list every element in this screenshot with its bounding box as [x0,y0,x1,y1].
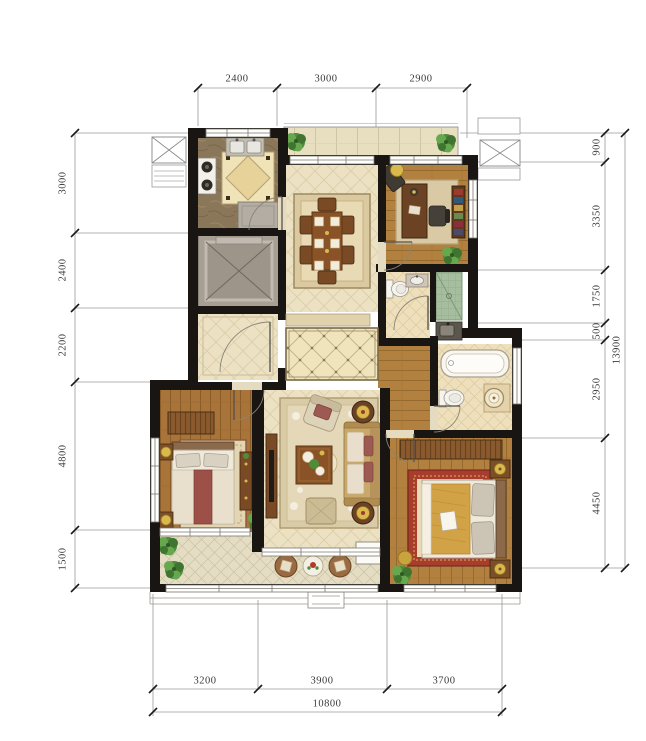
dim-label: 2400 [58,259,69,282]
bathtub [441,350,509,377]
window-living-balcony [262,548,380,556]
side-table [352,401,374,423]
dim-label: 3000 [58,172,69,195]
elevator [198,234,280,308]
window-master-south [404,585,496,592]
toilet [439,390,464,407]
sofa [344,422,380,506]
dim-label: 4800 [58,445,69,468]
window-sill-south [150,592,520,608]
window-kitchen-north [206,129,270,137]
bed [172,442,234,524]
dim-label: 2200 [58,334,69,357]
master-bathroom [437,344,512,430]
study-door-threshold [378,242,386,272]
window-balcony-south [166,585,378,592]
floor-plan-page: 2400 3000 2900 3000 2400 2200 4800 1500 … [0,0,646,741]
side-table [352,502,374,524]
wardrobe [168,412,214,434]
master-bedroom [390,438,512,585]
wicker-chair [329,555,351,577]
ottoman [306,498,336,524]
bookshelf [452,186,465,238]
stool [398,551,412,565]
dim-label: 900 [592,138,603,155]
dim-total-label: 13900 [612,336,623,365]
foyer [198,306,278,380]
dim-label: 2400 [226,74,249,85]
stove [198,158,216,194]
master-door-threshold [386,430,414,438]
balcony-north [284,124,458,160]
side-table [391,164,404,177]
dim-label: 500 [592,322,603,339]
dining-room [284,162,378,312]
toilet [386,280,409,298]
window-bedroom2-balcony [160,528,250,536]
desk [402,184,427,238]
bedroom2-door-threshold [232,382,262,390]
wardrobe [400,440,502,459]
dim-label: 2950 [592,378,603,401]
dresser [240,452,252,510]
balcony-table [303,556,323,576]
dim-label: 3700 [433,676,456,687]
guest-bathroom [384,272,430,338]
kitchen [196,136,278,230]
master-bed [422,480,506,558]
kitchen-sink [226,138,264,156]
floor-plan-drawing [0,0,646,741]
coffee-table [296,446,332,484]
dim-label: 3200 [194,676,217,687]
round-sink [485,389,504,408]
dim-label: 2900 [410,74,433,85]
hallway [286,314,378,380]
fridge [238,202,278,230]
nightstand [490,460,510,478]
tv-cabinet [266,434,277,518]
ac-platform-east [478,118,520,180]
dim-label: 3900 [311,676,334,687]
nightstand [159,512,173,528]
wicker-chair [275,555,297,577]
dim-label: 1500 [58,548,69,571]
dim-label: 3000 [315,74,338,85]
hall-runner [286,314,370,326]
window-bedroom2-west [151,438,159,522]
nightstand [159,444,173,460]
nightstand [490,560,510,578]
bedroom-2 [158,390,268,532]
masterbath-door-threshold [430,406,438,430]
ac-platform-west [152,137,186,187]
study [378,164,470,268]
laundry-counter [436,322,462,340]
window-masterbath-east [513,348,521,404]
dim-label: 4450 [592,492,603,515]
shower [436,272,462,320]
window-study-east [469,180,477,238]
living-room [264,390,380,552]
hall-medallion [286,328,378,380]
window-dining-north [290,156,374,164]
dim-label: 1750 [592,285,603,308]
vanity-sink [406,274,428,287]
window-study-north [390,156,462,164]
dim-total-label: 10800 [313,699,342,710]
dim-label: 3350 [592,205,603,228]
